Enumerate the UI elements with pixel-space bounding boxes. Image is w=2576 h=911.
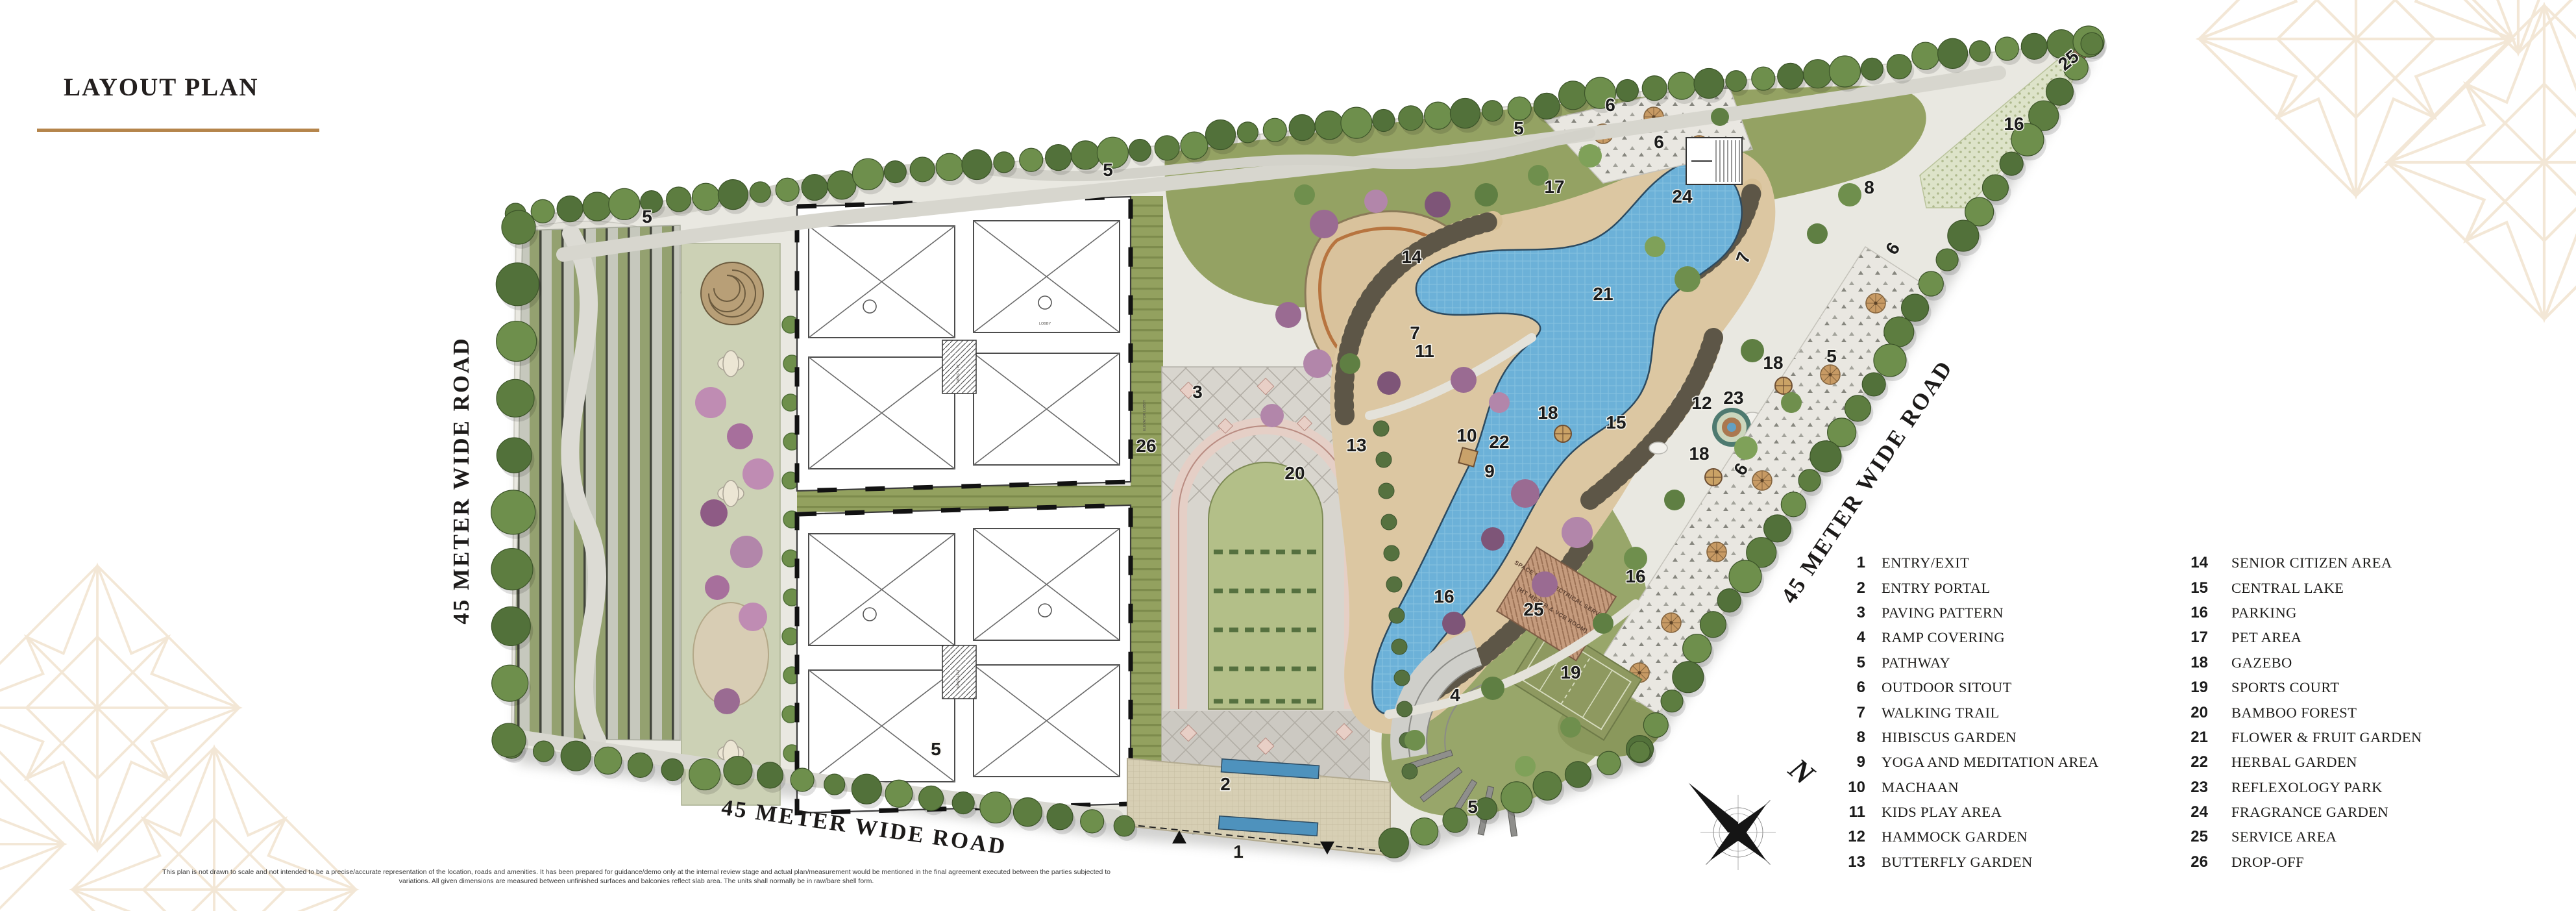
legend-item-number: 14: [2168, 554, 2208, 572]
legend-row: 17PET AREA: [2168, 625, 2422, 650]
legend-row: 22HERBAL GARDEN: [2168, 750, 2422, 775]
perimeter-tree: [492, 723, 526, 757]
legend-row: 15CENTRAL LAKE: [2168, 575, 2422, 600]
perimeter-tree: [1597, 751, 1621, 775]
perimeter-tree: [1565, 762, 1591, 788]
perimeter-tree: [1862, 373, 1885, 396]
plan-marker-22: 22: [1489, 432, 1509, 452]
plan-marker-10: 10: [1456, 425, 1477, 445]
perimeter-tree: [962, 150, 992, 180]
legend-row: 21FLOWER & FRUIT GARDEN: [2168, 725, 2422, 750]
perimeter-tree: [1764, 515, 1791, 542]
legend-item-label: BUTTERFLY GARDEN: [1882, 854, 2033, 871]
legend-row: 5PATHWAY: [1825, 651, 2099, 675]
perimeter-tree: [852, 158, 883, 190]
perimeter-tree: [1781, 492, 1806, 517]
legend-item-label: PAVING PATTERN: [1882, 605, 2004, 621]
legend-item-number: 5: [1825, 654, 1865, 672]
legend-item-label: HERBAL GARDEN: [2231, 754, 2357, 771]
perimeter-tree: [1013, 798, 1042, 827]
perimeter-tree: [936, 153, 963, 181]
legend-item-label: OUTDOOR SITOUT: [1882, 679, 2012, 696]
plan-marker-15: 15: [1606, 412, 1626, 432]
perimeter-tree: [1845, 395, 1871, 421]
perimeter-tree: [1155, 136, 1179, 160]
perimeter-tree: [595, 747, 622, 774]
perimeter-tree: [1081, 810, 1104, 833]
perimeter-tree: [952, 792, 974, 814]
legend-item-number: 21: [2168, 729, 2208, 747]
perimeter-tree: [2081, 32, 2103, 55]
legend-item-label: HIBISCUS GARDEN: [1882, 729, 2017, 746]
perimeter-tree: [1047, 804, 1073, 830]
legend-row: 1ENTRY/EXIT: [1825, 551, 2099, 575]
legend-item-number: 24: [2168, 803, 2208, 821]
rock: [1649, 442, 1667, 454]
perimeter-tree: [1673, 662, 1704, 693]
plan-marker-6: 6: [1605, 95, 1615, 115]
plan-marker-16: 16: [1434, 586, 1454, 606]
legend-row: 23REFLEXOLOGY PARK: [2168, 775, 2422, 800]
plan-marker-8: 8: [1864, 177, 1874, 197]
perimeter-tree: [1237, 122, 1258, 143]
ornament-bottom-left: [0, 566, 356, 911]
perimeter-tree: [1726, 71, 1747, 92]
plan-marker-25: 25: [1523, 599, 1543, 619]
perimeter-tree: [491, 549, 533, 590]
perimeter-tree: [1475, 797, 1497, 819]
perimeter-tree: [919, 786, 944, 810]
perimeter-tree: [1902, 294, 1929, 321]
perimeter-tree: [1443, 808, 1467, 832]
legend-item-number: 11: [1825, 803, 1865, 821]
perimeter-tree: [1501, 782, 1532, 813]
perimeter-tree: [1114, 816, 1135, 836]
core-label: ELEVATOR LOBBY: [1143, 400, 1147, 432]
legend-item-label: REFLEXOLOGY PARK: [2231, 779, 2383, 796]
legend-row: 16PARKING: [2168, 601, 2422, 625]
legend-item-number: 22: [2168, 753, 2208, 771]
perimeter-tree: [1289, 115, 1315, 141]
legend-row: 4RAMP COVERING: [1825, 625, 2099, 650]
legend-item-number: 1: [1825, 554, 1865, 572]
legend-item-number: 7: [1825, 704, 1865, 722]
plan-marker-3: 3: [1192, 382, 1203, 402]
legend-row: 18GAZEBO: [2168, 651, 2422, 675]
perimeter-tree: [802, 175, 828, 201]
perimeter-tree: [1668, 72, 1695, 99]
plan-marker-6: 6: [1654, 132, 1664, 152]
legend-item-number: 10: [1825, 779, 1865, 797]
perimeter-tree: [1969, 41, 1990, 62]
plan-marker-21: 21: [1593, 284, 1613, 304]
legend-item-number: 12: [1825, 828, 1865, 846]
perimeter-tree: [1629, 742, 1650, 762]
legend-item-label: SENIOR CITIZEN AREA: [2231, 555, 2392, 571]
perimeter-tree: [1616, 79, 1638, 101]
perimeter-tree: [828, 171, 856, 199]
legend-row: 20BAMBOO FOREST: [2168, 700, 2422, 725]
perimeter-tree: [502, 210, 535, 244]
plan-marker-7: 7: [1410, 323, 1420, 343]
perimeter-tree: [1533, 771, 1562, 800]
legend-row: 25SERVICE AREA: [2168, 825, 2422, 849]
plan-marker-20: 20: [1284, 463, 1305, 483]
perimeter-tree: [1642, 76, 1667, 101]
legend-item-label: PARKING: [2231, 605, 2297, 621]
perimeter-tree: [1534, 93, 1560, 119]
perimeter-tree: [884, 161, 906, 183]
perimeter-tree: [1829, 56, 1860, 87]
perimeter-tree: [1694, 68, 1724, 98]
perimeter-tree: [1912, 42, 1939, 69]
legend-item-number: 2: [1825, 579, 1865, 597]
legend-item-label: SPORTS COURT: [2231, 679, 2340, 696]
perimeter-tree: [497, 379, 534, 417]
legend-item-number: 18: [2168, 654, 2208, 672]
machaan-platform: [1458, 447, 1477, 466]
legend-item-label: PET AREA: [2231, 629, 2301, 646]
core-label: PASS. LIFT: [957, 364, 961, 382]
perimeter-tree: [1798, 469, 1821, 492]
plan-marker-24: 24: [1672, 186, 1693, 206]
perimeter-tree: [1700, 612, 1726, 638]
plan-marker-5: 5: [1467, 797, 1478, 817]
perimeter-tree: [1936, 249, 1958, 271]
legend-item-label: YOGA AND MEDITATION AREA: [1882, 754, 2099, 771]
plan-marker-16: 16: [2004, 114, 2024, 134]
perimeter-tree: [491, 490, 535, 534]
perimeter-tree: [583, 192, 611, 221]
perimeter-tree: [1874, 344, 1906, 377]
perimeter-tree: [1373, 109, 1395, 131]
legend-item-label: BAMBOO FOREST: [2231, 705, 2357, 721]
legend-item-label: PATHWAY: [1882, 655, 1950, 671]
plan-marker-5: 5: [642, 206, 652, 227]
perimeter-tree: [661, 758, 683, 780]
title-underline: [37, 129, 319, 132]
plan-marker-5: 5: [1103, 160, 1113, 180]
perimeter-tree: [689, 759, 720, 790]
legend-item-label: MACHAAN: [1882, 779, 1959, 796]
legend-item-label: ENTRY PORTAL: [1882, 580, 1991, 597]
legend-item-number: 19: [2168, 679, 2208, 697]
plan-marker-12: 12: [1691, 393, 1711, 413]
disclaimer-text: This plan is not drawn to scale and not …: [154, 868, 1118, 886]
legend-row: 11KIDS PLAY AREA: [1825, 800, 2099, 825]
legend-item-number: 13: [1825, 853, 1865, 871]
plan-marker-5: 5: [931, 739, 941, 759]
perimeter-tree: [1263, 118, 1286, 142]
legend-item-label: SERVICE AREA: [2231, 829, 2337, 845]
perimeter-tree: [609, 188, 640, 219]
legend-row: 3PAVING PATTERN: [1825, 601, 2099, 625]
legend-item-number: 8: [1825, 729, 1865, 747]
legend-item-number: 4: [1825, 629, 1865, 647]
perimeter-tree: [1072, 141, 1100, 169]
legend-column-2: 14SENIOR CITIZEN AREA15CENTRAL LAKE16PAR…: [2168, 551, 2422, 875]
legend-item-label: CENTRAL LAKE: [2231, 580, 2344, 597]
perimeter-tree: [497, 321, 537, 362]
perimeter-tree: [1379, 828, 1408, 858]
perimeter-tree: [531, 199, 554, 223]
perimeter-tree: [1683, 634, 1711, 663]
perimeter-tree: [910, 157, 935, 182]
perimeter-tree: [1482, 101, 1503, 121]
perimeter-tree: [791, 768, 814, 792]
perimeter-tree: [1315, 111, 1343, 140]
legend-item-label: FLOWER & FRUIT GARDEN: [2231, 729, 2422, 746]
spiral-feature: [701, 262, 763, 325]
legend-row: 13BUTTERFLY GARDEN: [1825, 850, 2099, 875]
plan-marker-14: 14: [1401, 247, 1422, 267]
page-title: LAYOUT PLAN: [64, 73, 258, 102]
perimeter-tree: [561, 741, 591, 771]
perimeter-tree: [1206, 120, 1236, 150]
legend-row: 2ENTRY PORTAL: [1825, 575, 2099, 600]
legend-item-number: 15: [2168, 579, 2208, 597]
perimeter-tree: [497, 438, 532, 473]
perimeter-tree: [496, 263, 539, 306]
perimeter-tree: [1948, 220, 1979, 251]
compass-north-label: N: [1782, 751, 1821, 792]
perimeter-tree: [693, 183, 720, 210]
ornament-top-right: [2200, 0, 2576, 319]
perimeter-tree: [534, 741, 554, 762]
perimeter-tree: [757, 762, 783, 788]
perimeter-tree: [1717, 589, 1741, 612]
perimeter-tree: [628, 753, 652, 777]
legend-row: 8HIBISCUS GARDEN: [1825, 725, 2099, 750]
perimeter-tree: [2046, 78, 2074, 105]
legend-item-label: WALKING TRAIL: [1882, 705, 2000, 721]
perimeter-tree: [1938, 38, 1968, 68]
compass: N: [1651, 745, 1822, 908]
plan-marker-4: 4: [1450, 685, 1460, 705]
perimeter-tree: [1752, 67, 1775, 90]
perimeter-tree: [1887, 55, 1911, 79]
perimeter-tree: [852, 774, 881, 804]
perimeter-tree: [1982, 175, 2008, 201]
perimeter-tree: [776, 178, 799, 201]
perimeter-tree: [1729, 560, 1761, 593]
linear-garden-strip: [681, 243, 780, 805]
perimeter-tree: [718, 180, 748, 210]
stair-structure: [1686, 138, 1742, 184]
legend-item-number: 20: [2168, 704, 2208, 722]
perimeter-tree: [2000, 152, 2023, 175]
perimeter-tree: [1778, 63, 1804, 89]
podium-lawn: [1131, 196, 1163, 804]
plan-marker-18: 18: [1538, 403, 1558, 423]
perimeter-tree: [2021, 33, 2047, 59]
legend-row: 26DROP-OFF: [2168, 850, 2422, 875]
plan-marker-18: 18: [1689, 443, 1709, 464]
legend-item-label: KIDS PLAY AREA: [1882, 804, 2002, 821]
plan-marker-2: 2: [1220, 774, 1231, 794]
perimeter-tree: [1425, 102, 1452, 129]
perimeter-tree: [824, 774, 845, 795]
plan-marker-26: 26: [1136, 436, 1156, 456]
perimeter-tree: [492, 665, 528, 701]
legend-item-label: FRAGRANCE GARDEN: [2231, 804, 2388, 821]
plan-marker-16: 16: [1625, 566, 1645, 586]
legend-item-label: GAZEBO: [2231, 655, 2292, 671]
legend-row: 7WALKING TRAIL: [1825, 700, 2099, 725]
perimeter-tree: [1661, 690, 1683, 712]
road-label-left: 45 METER WIDE ROAD: [448, 336, 474, 624]
perimeter-tree: [1919, 271, 1943, 296]
legend-item-label: ENTRY/EXIT: [1882, 555, 1969, 571]
perimeter-tree: [1020, 148, 1043, 171]
perimeter-tree: [1341, 107, 1372, 138]
perimeter-tree: [994, 152, 1014, 173]
perimeter-tree: [1508, 97, 1531, 120]
legend-item-label: DROP-OFF: [2231, 854, 2304, 871]
perimeter-tree: [1861, 58, 1883, 80]
perimeter-tree: [1046, 145, 1072, 171]
plan-marker-13: 13: [1346, 435, 1366, 455]
legend-item-number: 25: [2168, 828, 2208, 846]
legend-column-1: 1ENTRY/EXIT2ENTRY PORTAL3PAVING PATTERN4…: [1825, 551, 2099, 875]
perimeter-tree: [557, 196, 583, 222]
legend-item-number: 6: [1825, 679, 1865, 697]
legend-item-number: 16: [2168, 604, 2208, 622]
legend-row: 14SENIOR CITIZEN AREA: [2168, 551, 2422, 575]
perimeter-tree: [1559, 81, 1588, 110]
perimeter-tree: [750, 182, 770, 203]
legend-item-label: RAMP COVERING: [1882, 629, 2005, 646]
perimeter-tree: [1810, 441, 1841, 472]
plan-marker-11: 11: [1415, 341, 1434, 361]
plan-marker-1: 1: [1233, 842, 1244, 862]
legend-row: 10MACHAAN: [1825, 775, 2099, 800]
plan-marker-18: 18: [1763, 353, 1783, 373]
legend-item-number: 17: [2168, 629, 2208, 647]
legend-item-number: 26: [2168, 853, 2208, 871]
plan-marker-17: 17: [1544, 177, 1564, 197]
legend-item-number: 23: [2168, 779, 2208, 797]
legend-item-number: 3: [1825, 604, 1865, 622]
core-label: LOBBY: [1039, 322, 1051, 326]
perimeter-tree: [1399, 106, 1423, 131]
perimeter-tree: [1643, 713, 1668, 738]
plan-marker-23: 23: [1723, 388, 1743, 408]
perimeter-tree: [491, 606, 530, 645]
perimeter-tree: [980, 792, 1011, 823]
plan-marker-5: 5: [1514, 118, 1524, 138]
perimeter-tree: [724, 756, 752, 785]
perimeter-tree: [885, 780, 913, 807]
perimeter-tree: [1411, 818, 1438, 845]
legend-item-number: 9: [1825, 753, 1865, 771]
perimeter-tree: [1450, 98, 1480, 128]
perimeter-tree: [1884, 317, 1914, 347]
legend-row: 19SPORTS COURT: [2168, 675, 2422, 700]
plan-marker-9: 9: [1484, 461, 1495, 481]
layout-plan-page: PASS. LIFT PASS. LIFT ELEVATOR LOBBY LOB…: [0, 0, 2576, 911]
plan-marker-19: 19: [1560, 662, 1580, 682]
perimeter-tree: [1181, 132, 1208, 159]
legend-row: 12HAMMOCK GARDEN: [1825, 825, 2099, 849]
perimeter-tree: [1995, 37, 2018, 60]
title-block: LAYOUT PLAN: [64, 73, 258, 102]
legend-item-label: HAMMOCK GARDEN: [1882, 829, 2028, 845]
perimeter-tree: [667, 187, 691, 212]
legend-row: 24FRAGRANCE GARDEN: [2168, 800, 2422, 825]
perimeter-tree: [1129, 140, 1151, 162]
core-label: PASS. LIFT: [957, 669, 961, 688]
perimeter-tree: [1804, 60, 1832, 88]
legend-row: 9YOGA AND MEDITATION AREA: [1825, 750, 2099, 775]
plan-marker-5: 5: [1826, 346, 1837, 366]
legend-row: 6OUTDOOR SITOUT: [1825, 675, 2099, 700]
